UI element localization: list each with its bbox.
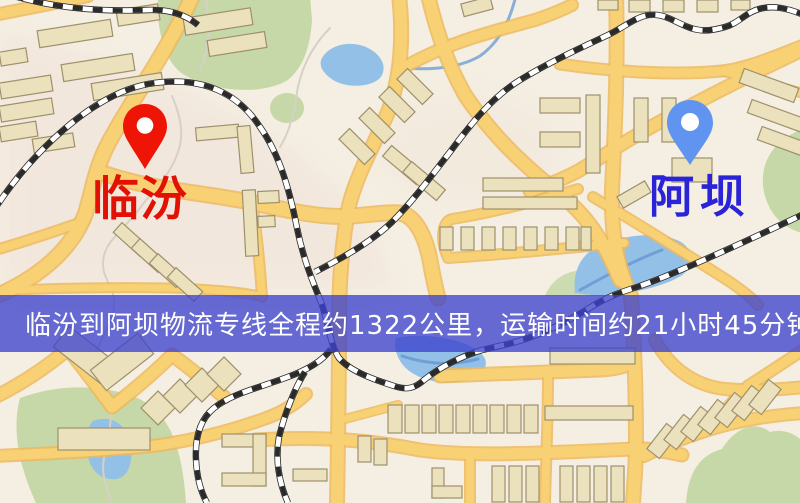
map-screenshot: 临汾 阿坝 临汾到阿坝物流专线全程约1322公里，运输时间约21小时45分钟. (0, 0, 800, 503)
origin-label: 临汾 (92, 176, 188, 223)
destination-label: 阿坝 (649, 174, 751, 219)
destination-pin-icon[interactable] (666, 99, 714, 166)
route-info-banner: 临汾到阿坝物流专线全程约1322公里，运输时间约21小时45分钟. (0, 295, 800, 352)
origin-pin-icon[interactable] (122, 103, 168, 170)
route-info-text: 临汾到阿坝物流专线全程约1322公里，运输时间约21小时45分钟. (25, 305, 800, 342)
map-canvas[interactable] (0, 0, 800, 503)
